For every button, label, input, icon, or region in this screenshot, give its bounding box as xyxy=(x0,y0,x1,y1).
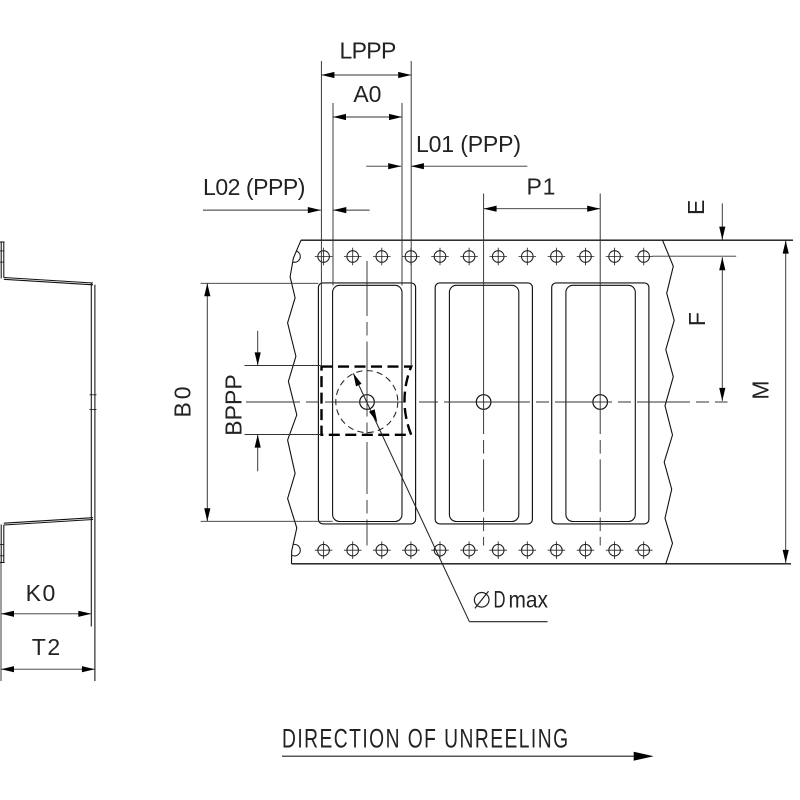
svg-text:L02 (PPP): L02 (PPP) xyxy=(203,174,305,200)
svg-text:F: F xyxy=(684,312,710,326)
svg-text:A0: A0 xyxy=(353,81,381,107)
svg-text:max: max xyxy=(509,587,549,613)
svg-text:LPPP: LPPP xyxy=(339,38,396,64)
svg-text:M: M xyxy=(747,380,773,399)
svg-text:K0: K0 xyxy=(26,580,57,606)
svg-text:D: D xyxy=(494,587,506,614)
svg-text:T2: T2 xyxy=(32,634,62,660)
svg-text:BPPP: BPPP xyxy=(221,374,247,435)
svg-text:L01 (PPP): L01 (PPP) xyxy=(416,131,521,157)
svg-text:P1: P1 xyxy=(527,173,556,199)
svg-text:DIRECTION OF UNREELING: DIRECTION OF UNREELING xyxy=(282,724,570,754)
svg-text:E: E xyxy=(683,200,709,215)
